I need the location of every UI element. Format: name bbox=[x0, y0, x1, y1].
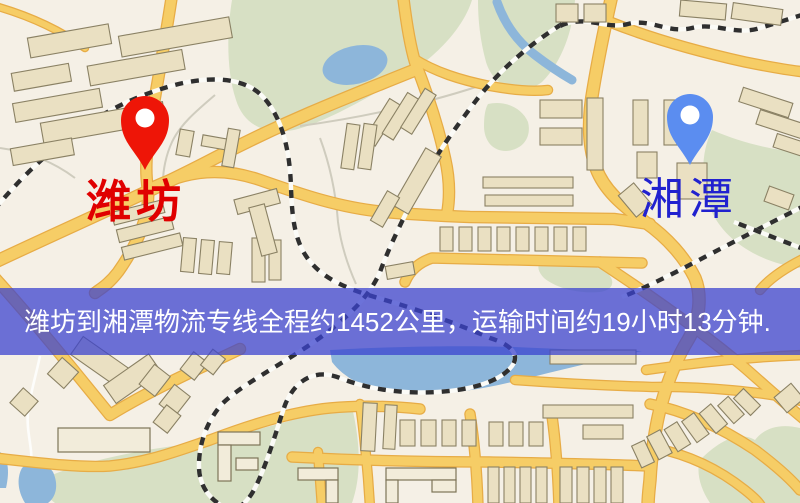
destination-city-label: 湘潭 bbox=[640, 175, 738, 224]
logistics-route-map: 潍坊 湘潭 潍坊到湘潭物流专线全程约1452公里，运输时间约19小时13分钟. bbox=[0, 0, 800, 503]
map-canvas: 潍坊 湘潭 潍坊到湘潭物流专线全程约1452公里，运输时间约19小时13分钟. bbox=[0, 0, 800, 503]
route-info-text: 潍坊到湘潭物流专线全程约1452公里，运输时间约19小时13分钟. bbox=[24, 307, 771, 337]
origin-city-label: 潍坊 bbox=[86, 177, 186, 227]
